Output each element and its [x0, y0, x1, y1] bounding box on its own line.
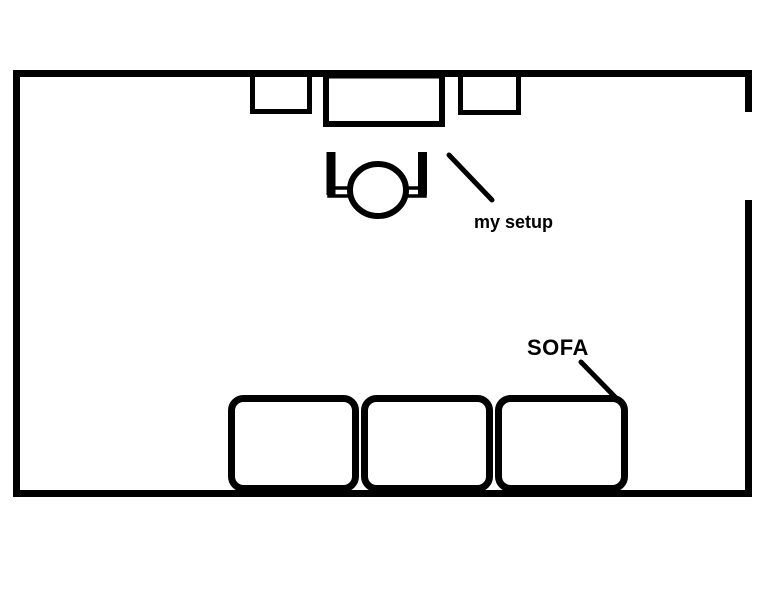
desk-left-block: [253, 75, 310, 112]
floorplan-sketch: my setup SOFA: [0, 0, 768, 614]
sofa-label: SOFA: [527, 335, 589, 360]
sofa-cushion-2: [365, 399, 490, 489]
chair-seat: [350, 164, 406, 216]
setup-leader-line: [449, 155, 492, 200]
desk-center-block: [326, 76, 442, 125]
wall-right-lower-segment: [745, 200, 752, 497]
desk-setup-blocks: [253, 75, 519, 125]
sofa-cushion-3: [499, 399, 625, 489]
chair: [327, 152, 428, 216]
sofa-cushion-1: [232, 399, 356, 489]
floorplan-drawing: my setup SOFA: [0, 0, 768, 614]
chair-right-armrest: [418, 152, 427, 195]
setup-label: my setup: [474, 212, 553, 232]
sofa: [232, 399, 625, 489]
wall-left: [13, 70, 20, 497]
chair-left-armrest: [327, 152, 336, 195]
desk-right-block: [461, 75, 519, 113]
sofa-leader-line: [581, 362, 618, 400]
wall-right-upper-segment: [745, 70, 752, 112]
